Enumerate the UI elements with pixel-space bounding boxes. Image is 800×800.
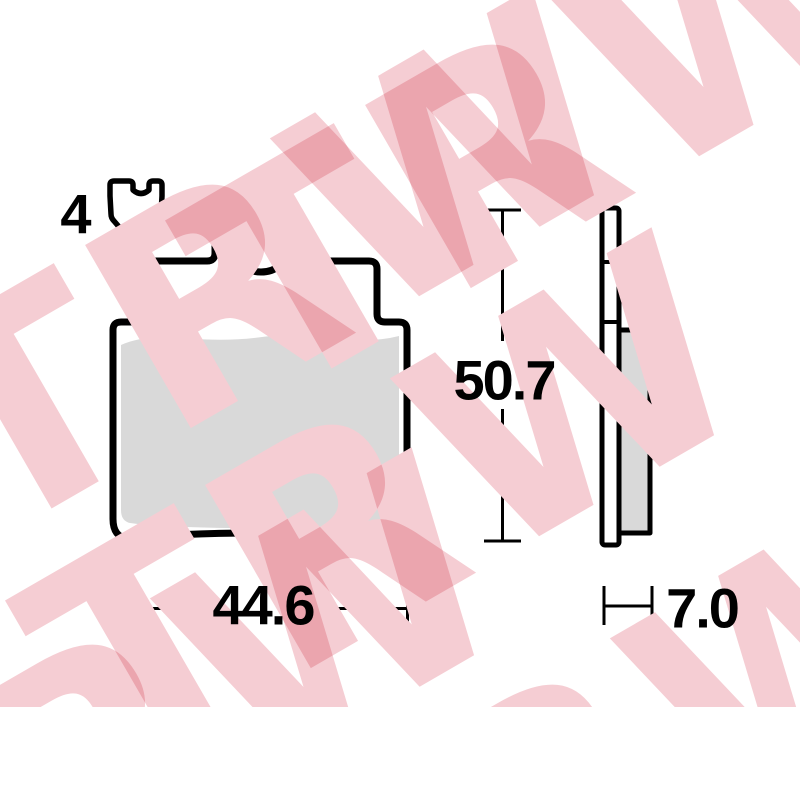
width-dimension-label: 44.6 xyxy=(213,573,314,638)
mounting-hole xyxy=(235,230,287,272)
side-backing-plate xyxy=(602,208,619,545)
brake-pad-drawing xyxy=(0,0,800,800)
side-friction-material xyxy=(619,330,650,533)
brake-pad-icon xyxy=(110,181,162,231)
pad-count-label: 4 xyxy=(60,182,89,247)
thickness-dimension-line xyxy=(604,586,652,625)
brake-pad-technical-diagram: TRW TRW TRW TRW TRW 4 50.7 44.6 7.0 xyxy=(0,0,800,800)
thickness-dimension-label: 7.0 xyxy=(666,576,738,641)
front-friction-material xyxy=(121,335,399,529)
height-dimension-label: 50.7 xyxy=(454,348,555,413)
